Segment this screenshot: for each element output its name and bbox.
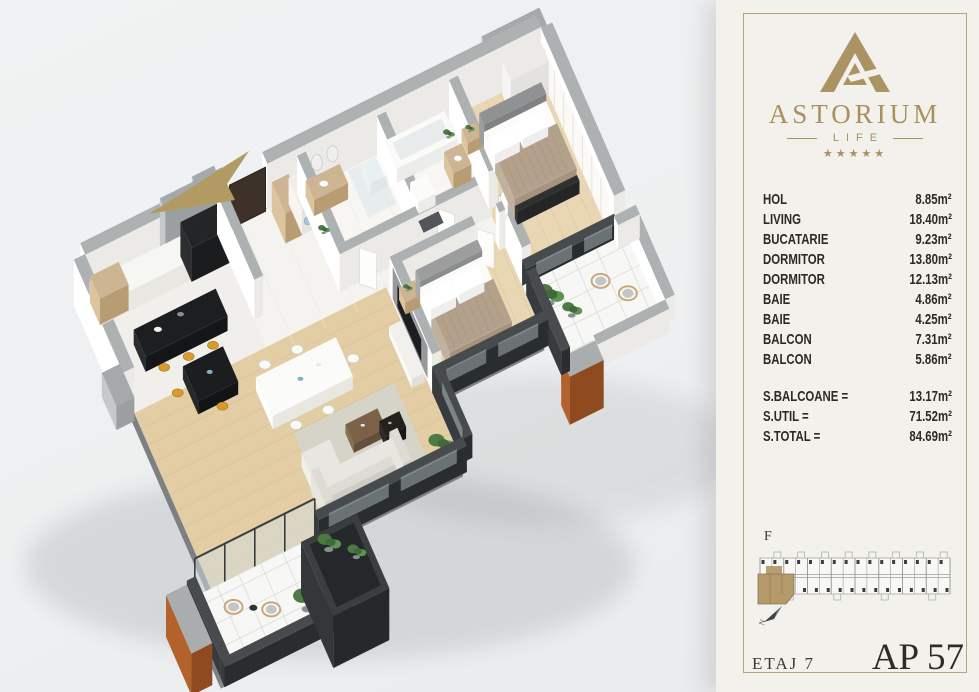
- total-area: 71.52m²: [910, 407, 952, 427]
- room-row: BALCON5.86m²: [763, 350, 952, 370]
- room-label: BALCON: [763, 330, 812, 350]
- room-label: BAIE: [763, 310, 790, 330]
- room-area: 13.80m²: [910, 250, 952, 270]
- room-area: 18.40m²: [910, 210, 952, 230]
- room-row: HOL8.85m²: [763, 190, 952, 210]
- brochure-page: ASTORIUM LIFE ★★★★★ HOL8.85m²LIVING18.40…: [0, 0, 979, 692]
- brand-block: ASTORIUM LIFE ★★★★★: [743, 30, 967, 160]
- brand-name: ASTORIUM: [743, 100, 967, 128]
- total-label: S.BALCOANE =: [763, 387, 848, 407]
- building-location-map: N: [756, 550, 961, 630]
- room-area: 4.86m²: [916, 290, 952, 310]
- section-label: F: [764, 529, 772, 545]
- room-row: DORMITOR13.80m²: [763, 250, 952, 270]
- right-dash: [893, 138, 923, 139]
- left-dash: [787, 138, 817, 139]
- total-row: S.UTIL =71.52m²: [763, 407, 952, 427]
- total-label: S.UTIL =: [763, 407, 809, 427]
- room-area: 12.13m²: [910, 270, 952, 290]
- room-row: DORMITOR12.13m²: [763, 270, 952, 290]
- room-area: 9.23m²: [916, 230, 952, 250]
- room-label: BUCATARIE: [763, 230, 828, 250]
- total-area: 13.17m²: [910, 387, 952, 407]
- five-stars-icon: ★★★★★: [743, 147, 967, 160]
- total-label: S.TOTAL =: [763, 427, 820, 447]
- room-area-list: HOL8.85m²LIVING18.40m²BUCATARIE9.23m²DOR…: [763, 190, 952, 370]
- brand-sub-label: LIFE: [826, 132, 884, 144]
- footer-row: ETAJ 7 AP 57: [752, 636, 964, 679]
- north-letter: N: [757, 618, 768, 627]
- north-arrow: N: [757, 606, 782, 627]
- room-label: DORMITOR: [763, 250, 825, 270]
- total-row: S.BALCOANE =13.17m²: [763, 387, 952, 407]
- brand-subtitle: LIFE: [743, 132, 967, 144]
- floor-plan-render: [0, 0, 716, 692]
- room-area: 4.25m²: [916, 310, 952, 330]
- room-label: BALCON: [763, 350, 812, 370]
- room-label: BAIE: [763, 290, 790, 310]
- room-row: BALCON7.31m²: [763, 330, 952, 350]
- info-panel: ASTORIUM LIFE ★★★★★ HOL8.85m²LIVING18.40…: [716, 0, 979, 692]
- brand-logo-triangle-icon: [817, 30, 893, 94]
- total-area: 84.69m²: [910, 427, 952, 447]
- apartment-number: AP 57: [872, 636, 964, 679]
- totals-list: S.BALCOANE =13.17m²S.UTIL =71.52m²S.TOTA…: [763, 387, 952, 447]
- floor-label: ETAJ 7: [752, 654, 815, 674]
- room-row: BAIE4.25m²: [763, 310, 952, 330]
- room-row: BAIE4.86m²: [763, 290, 952, 310]
- floor-plan-area: [0, 0, 716, 692]
- room-area: 8.85m²: [916, 190, 952, 210]
- room-area: 5.86m²: [916, 350, 952, 370]
- total-row: S.TOTAL =84.69m²: [763, 427, 952, 447]
- room-label: LIVING: [763, 210, 801, 230]
- room-row: BUCATARIE9.23m²: [763, 230, 952, 250]
- room-area: 7.31m²: [916, 330, 952, 350]
- room-label: DORMITOR: [763, 270, 825, 290]
- room-row: LIVING18.40m²: [763, 210, 952, 230]
- room-label: HOL: [763, 190, 787, 210]
